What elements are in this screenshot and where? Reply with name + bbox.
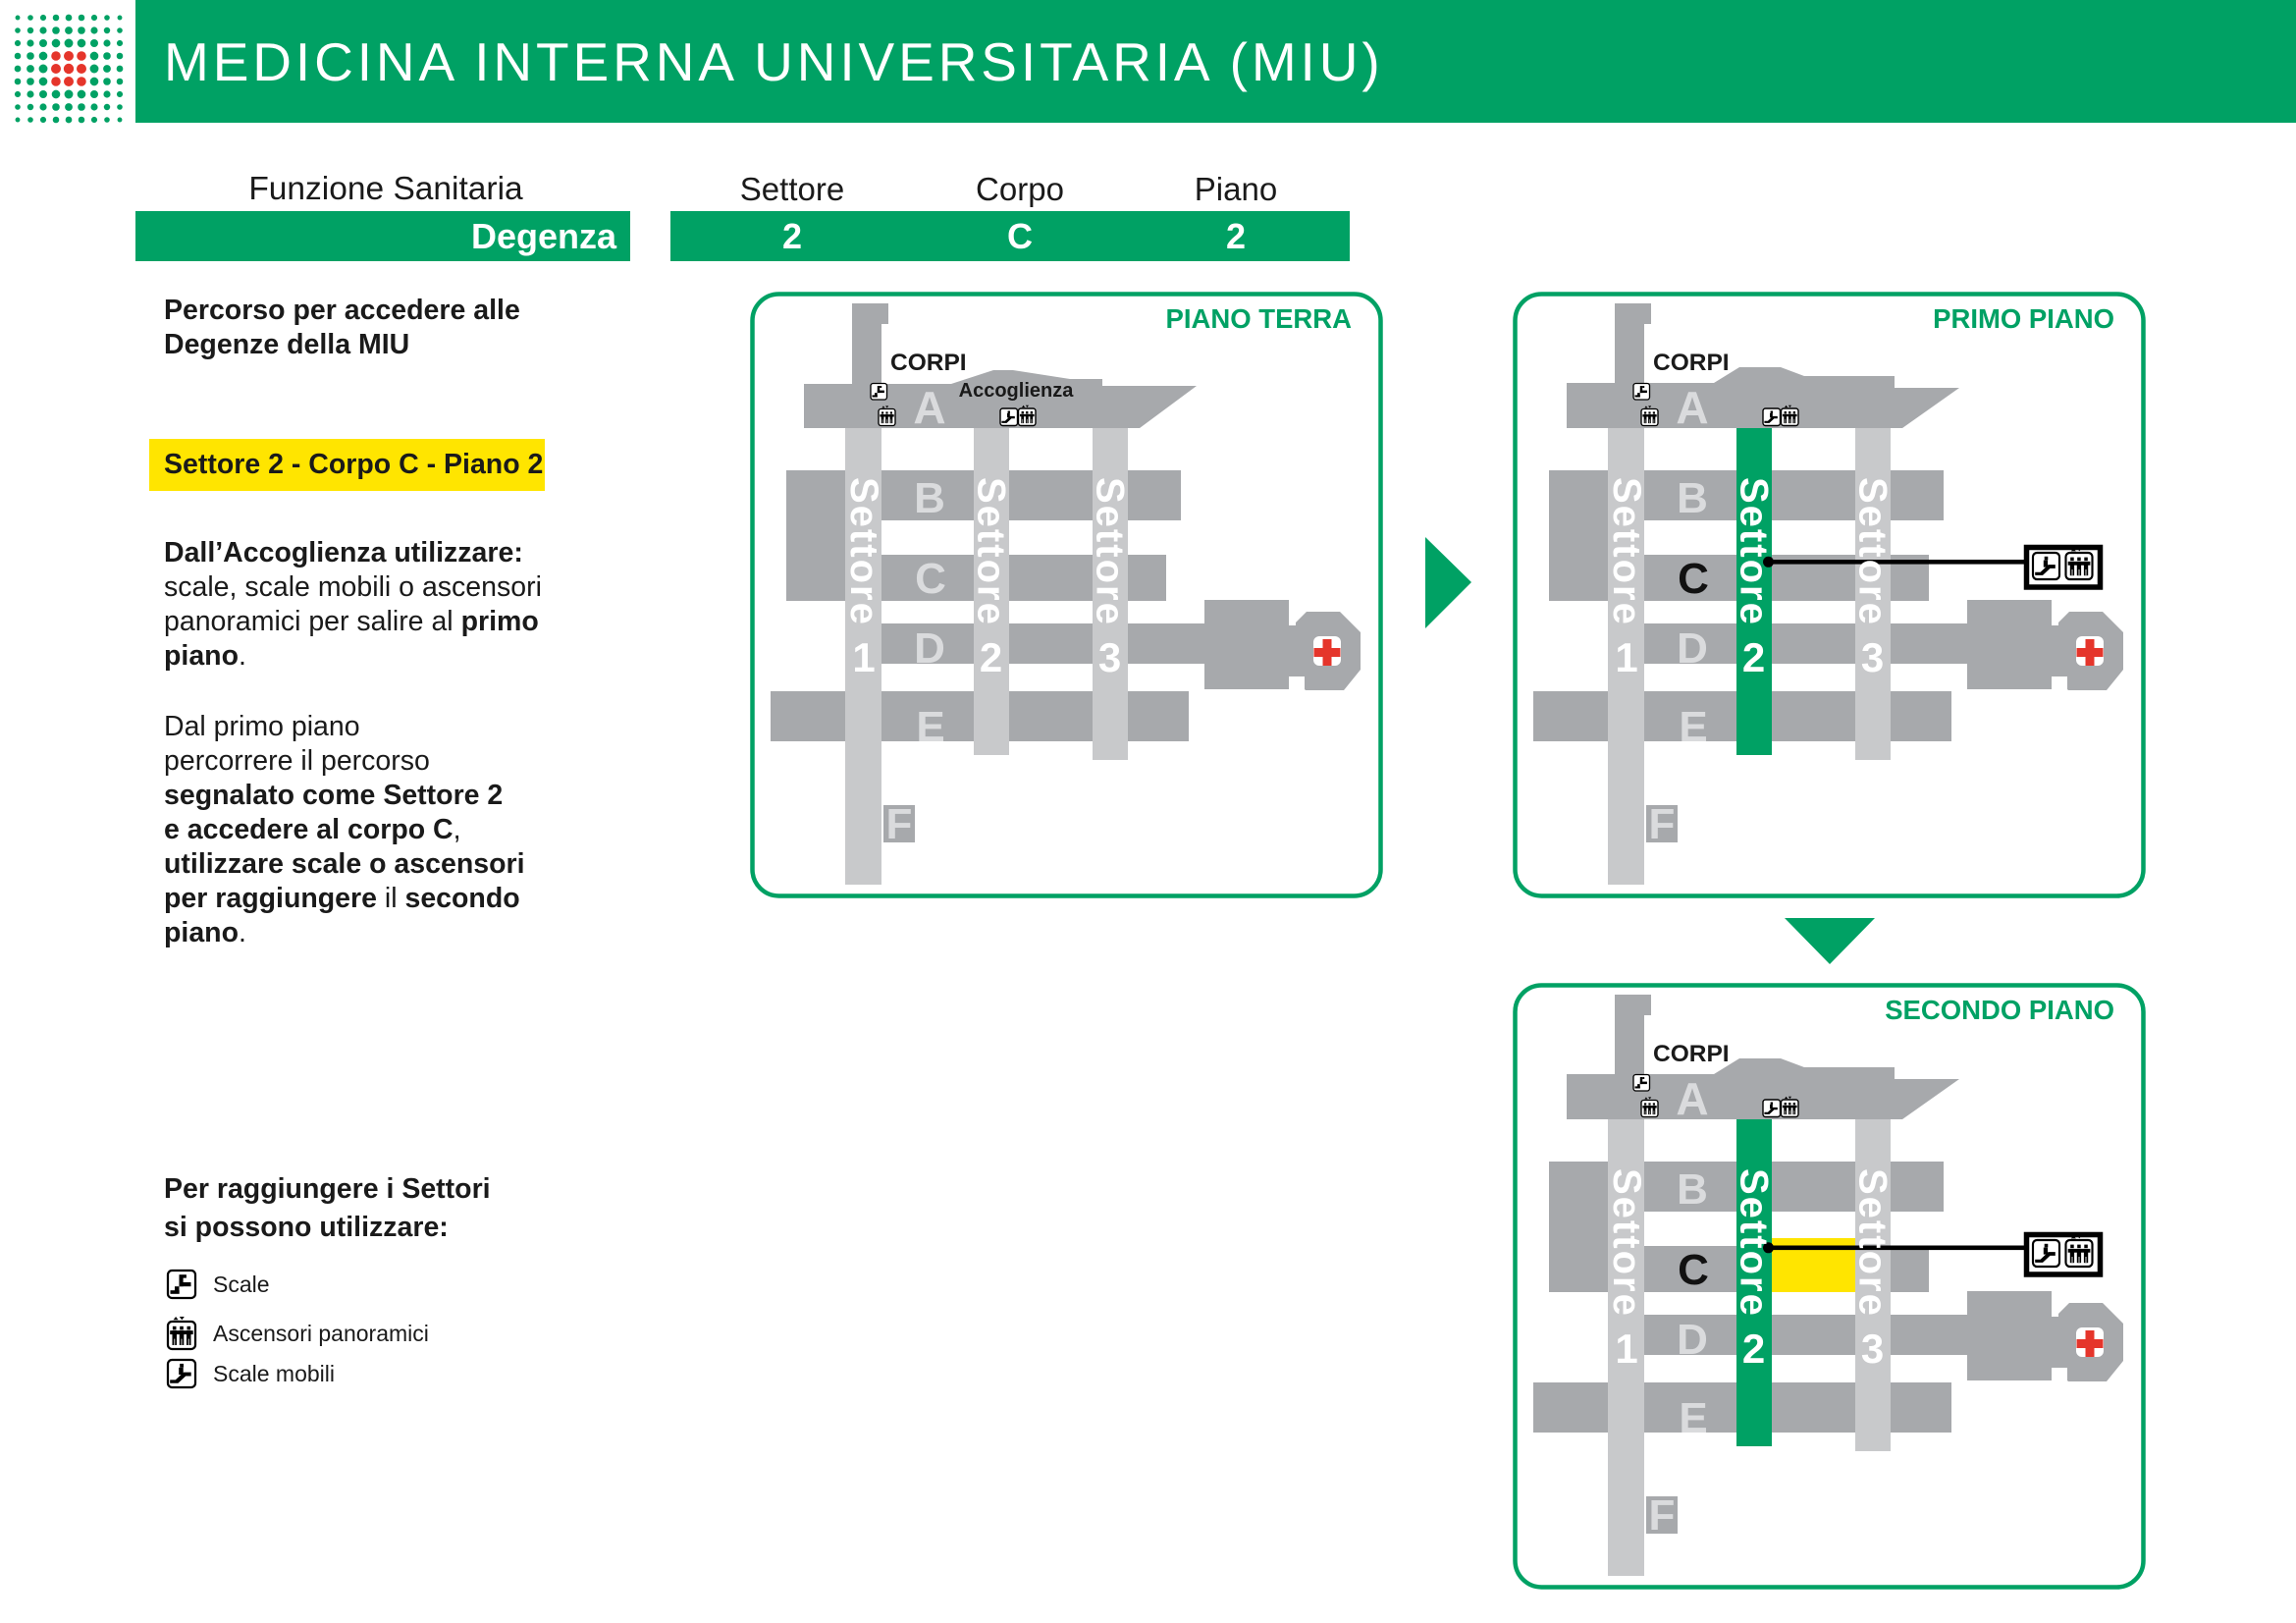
- svg-text:PIANO TERRA: PIANO TERRA: [1166, 303, 1353, 334]
- svg-text:2: 2: [980, 634, 1002, 680]
- svg-text:3: 3: [1861, 1325, 1884, 1372]
- svg-text:Scale: Scale: [213, 1271, 270, 1297]
- svg-text:Settore: Settore: [842, 477, 885, 626]
- svg-text:Settore: Settore: [1605, 477, 1648, 626]
- svg-text:SECONDO PIANO: SECONDO PIANO: [1885, 995, 2114, 1025]
- svg-text:Settore: Settore: [1605, 1168, 1648, 1318]
- svg-text:E: E: [1679, 1394, 1707, 1442]
- svg-text:1: 1: [1615, 634, 1637, 680]
- svg-text:A: A: [1676, 1073, 1708, 1124]
- svg-text:2: 2: [1742, 634, 1765, 680]
- svg-text:Accoglienza: Accoglienza: [959, 380, 1075, 402]
- svg-text:PRIMO PIANO: PRIMO PIANO: [1933, 303, 2114, 334]
- svg-text:F: F: [886, 800, 913, 848]
- svg-text:Settore: Settore: [970, 477, 1013, 626]
- svg-text:3: 3: [1098, 634, 1121, 680]
- svg-text:Ascensori panoramici: Ascensori panoramici: [213, 1321, 429, 1346]
- svg-text:CORPI: CORPI: [1653, 1041, 1730, 1067]
- svg-text:Settore: Settore: [1733, 477, 1776, 626]
- svg-text:CORPI: CORPI: [1653, 350, 1730, 376]
- svg-text:CORPI: CORPI: [890, 350, 967, 376]
- svg-text:E: E: [1679, 703, 1707, 751]
- svg-text:F: F: [1649, 800, 1676, 848]
- svg-text:Scale mobili: Scale mobili: [213, 1361, 335, 1386]
- svg-text:Settore: Settore: [1089, 477, 1132, 626]
- svg-text:E: E: [916, 703, 944, 751]
- svg-text:C: C: [1678, 1246, 1709, 1294]
- svg-text:B: B: [1677, 1165, 1708, 1214]
- svg-text:D: D: [1677, 1316, 1708, 1364]
- svg-text:Settore: Settore: [1733, 1168, 1776, 1318]
- svg-text:A: A: [913, 382, 945, 433]
- svg-text:D: D: [914, 624, 945, 673]
- svg-text:B: B: [914, 474, 945, 522]
- svg-text:D: D: [1677, 624, 1708, 673]
- svg-text:A: A: [1676, 382, 1708, 433]
- svg-text:C: C: [915, 555, 946, 603]
- svg-text:1: 1: [1615, 1325, 1637, 1372]
- svg-text:C: C: [1678, 555, 1709, 603]
- svg-text:Settore: Settore: [1851, 477, 1895, 626]
- svg-text:Settore: Settore: [1851, 1168, 1895, 1318]
- svg-text:B: B: [1677, 474, 1708, 522]
- svg-text:1: 1: [852, 634, 875, 680]
- svg-text:3: 3: [1861, 634, 1884, 680]
- svg-text:2: 2: [1742, 1325, 1765, 1372]
- svg-text:F: F: [1649, 1491, 1676, 1540]
